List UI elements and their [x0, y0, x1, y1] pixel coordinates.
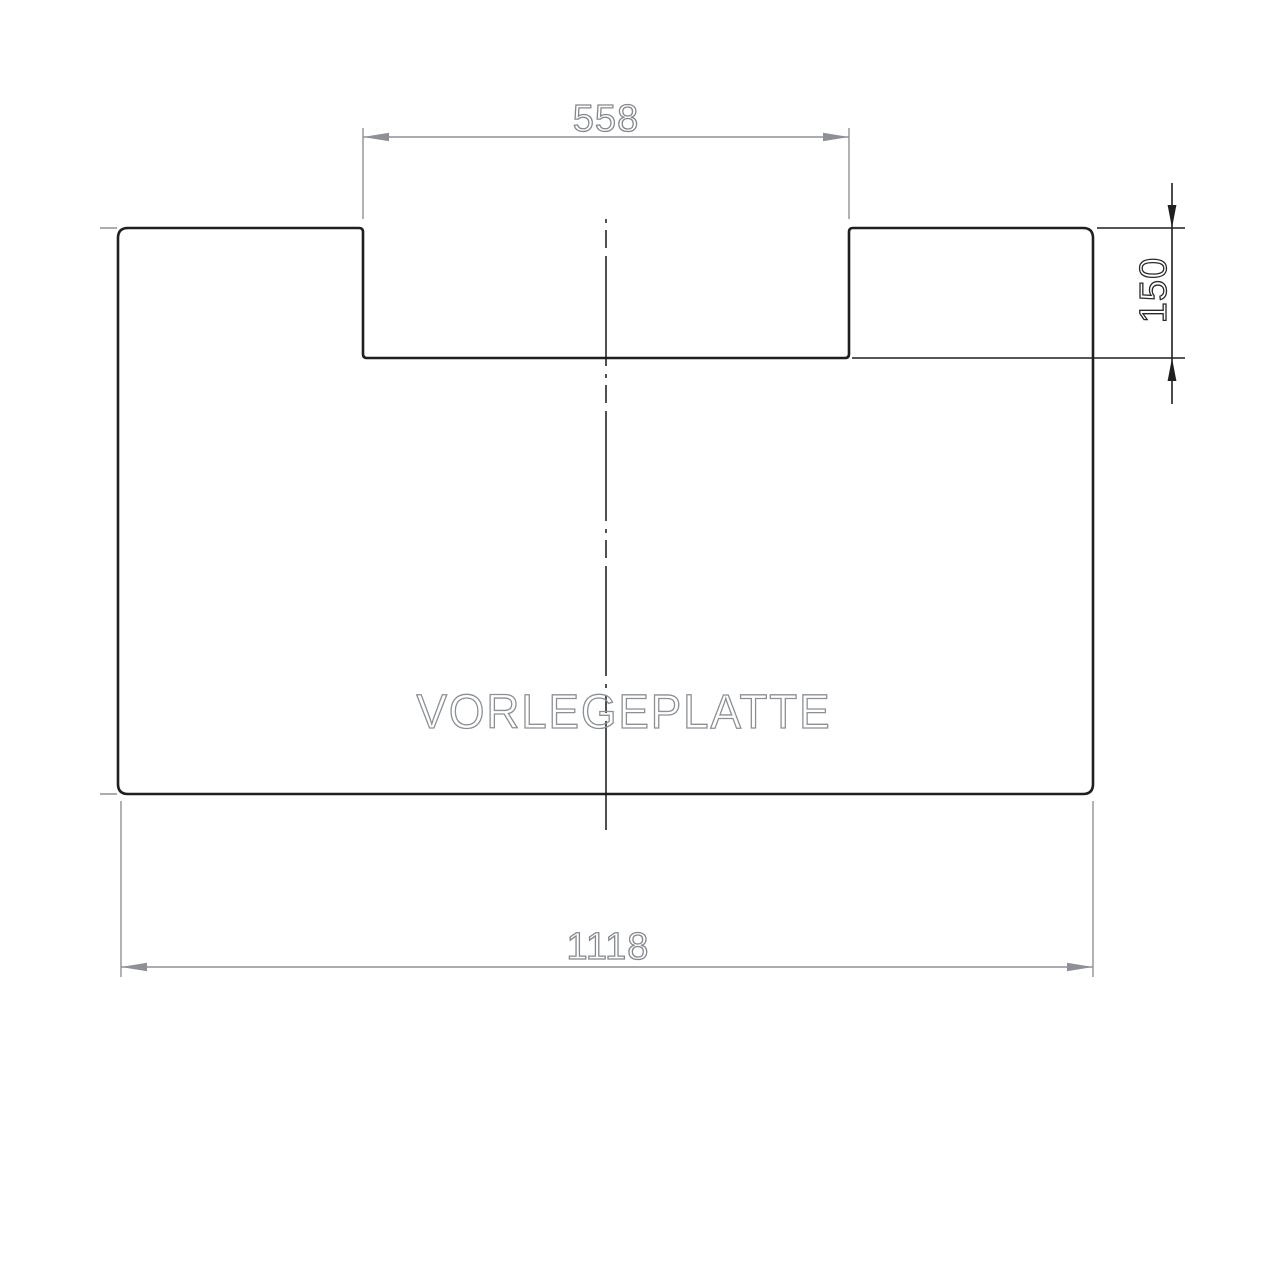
dimension-value-558: 558	[573, 98, 639, 140]
dimension-overall-width: 1118	[121, 801, 1093, 977]
arrowhead-left	[363, 133, 389, 141]
arrowhead-right	[823, 133, 849, 141]
arrowhead-top	[1168, 205, 1177, 228]
arrowhead-left	[121, 963, 147, 971]
dimension-notch-width: 558	[363, 98, 849, 219]
dimension-value-150: 150	[1133, 257, 1175, 323]
arrowhead-bottom	[1168, 358, 1177, 381]
part-name-label: VORLEGEPLATTE	[417, 686, 832, 739]
technical-drawing: 558 150 1118 VORLEGEPLATTE	[0, 0, 1280, 1280]
drawing-sheet: 558 150 1118 VORLEGEPLATTE	[0, 0, 1280, 1280]
arrowhead-right	[1067, 963, 1093, 971]
dimension-value-1118: 1118	[567, 926, 650, 968]
